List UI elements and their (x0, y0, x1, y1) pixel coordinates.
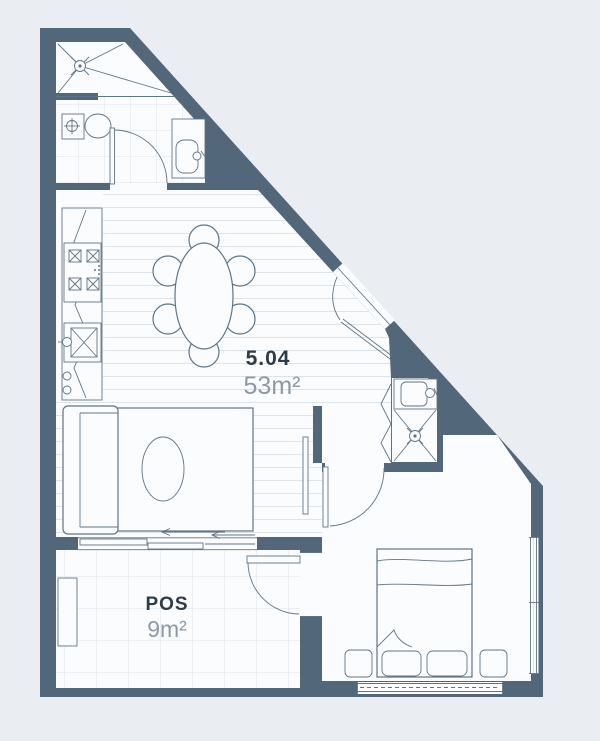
floor-plan: 5.04 53m² POS 9m² (0, 0, 600, 741)
pos-door-opening (300, 552, 322, 617)
sofa (63, 406, 118, 534)
pillow (427, 651, 467, 676)
tv (303, 437, 308, 514)
toilet-bowl (85, 114, 111, 138)
pos-label: POS (145, 594, 188, 615)
bedroom-side-window (529, 537, 539, 674)
unit-number-label: 5.04 (246, 347, 291, 370)
counter-dot (63, 386, 71, 394)
rug (117, 408, 253, 531)
coffee-table (142, 437, 184, 501)
bathroom-door-leaf (110, 128, 115, 184)
bathroom-door-opening (110, 183, 167, 191)
kitchen-sink (58, 323, 101, 362)
ensuite-shower-drain-icon (407, 428, 423, 444)
floor-plan-svg: 5.04 53m² POS 9m² (0, 0, 600, 741)
pos-area-label: 9m² (147, 616, 187, 642)
ensuite-basin (401, 382, 427, 406)
planter (58, 578, 77, 646)
bedroom-door-opening (325, 463, 384, 473)
pos-door-leaf (247, 556, 300, 563)
vanity-tap-icon (193, 152, 201, 160)
bedroom-bottom-window (357, 682, 503, 694)
cooktop (64, 243, 101, 302)
unit-area-label: 53m² (244, 372, 301, 400)
bedside-table (345, 650, 372, 677)
hall-floor (322, 404, 391, 463)
pillow (382, 651, 421, 676)
kitchen (58, 208, 102, 400)
sink-tap-icon (63, 338, 72, 347)
ensuite-tap-icon (426, 389, 435, 398)
sliding-panel (80, 539, 147, 545)
dining-table (175, 243, 233, 349)
bedroom-door-leaf (323, 467, 328, 527)
bedside-table (480, 650, 507, 677)
bed (377, 549, 472, 677)
sliding-panel (148, 543, 203, 549)
counter-dot (63, 372, 71, 380)
living-hall-wall (313, 406, 322, 463)
kitchen-counter (62, 208, 102, 400)
